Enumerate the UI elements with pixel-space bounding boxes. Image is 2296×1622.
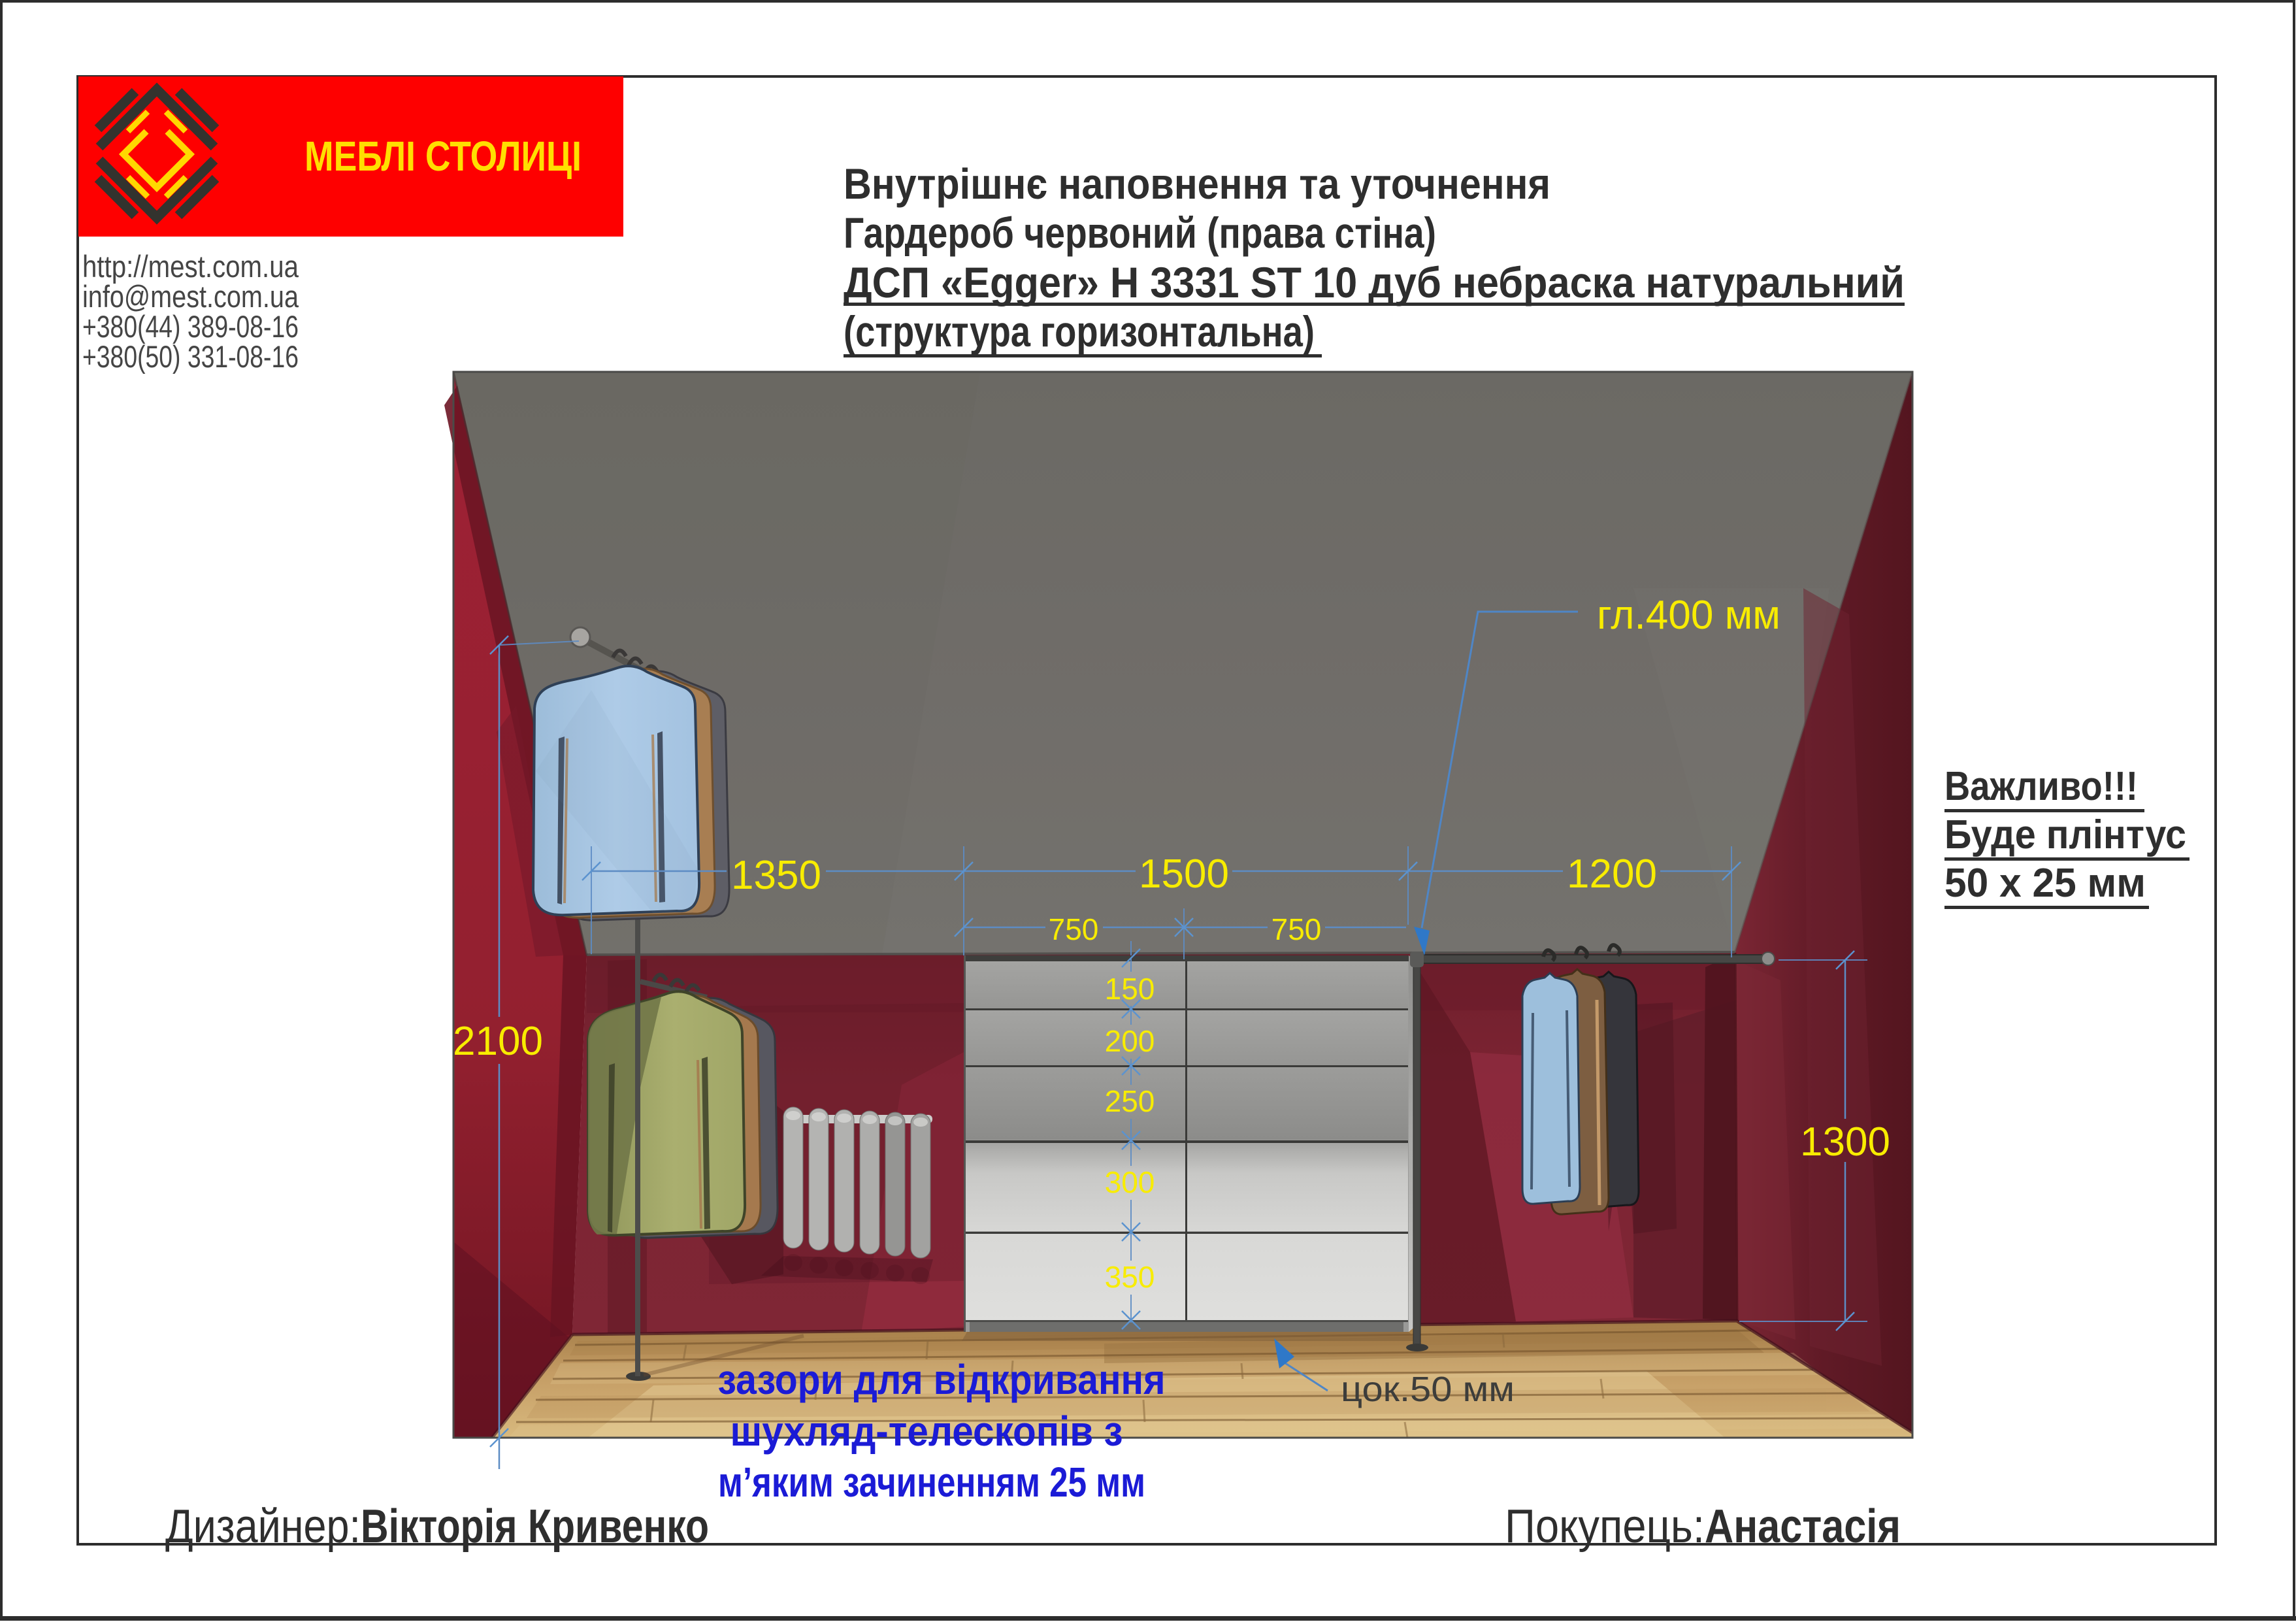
svg-text:(структура горизонтальна): (структура горизонтальна) [844,307,1315,356]
svg-text:Покупець:: Покупець: [1505,1500,1705,1553]
svg-text:200: 200 [1105,1024,1155,1058]
svg-text:1350: 1350 [731,853,821,898]
svg-text:Внутрішнє наповнення та уточне: Внутрішнє наповнення та уточнення [844,159,1550,208]
svg-text:м’яким зачиненням 25 мм: м’яким зачиненням 25 мм [718,1459,1145,1506]
svg-text:750: 750 [1049,912,1099,946]
svg-text:шухляд-телескопів з: шухляд-телескопів з [730,1408,1123,1455]
svg-text:Дизайнер:: Дизайнер: [165,1500,361,1553]
svg-text:Анастасія: Анастасія [1705,1500,1901,1553]
svg-text:Важливо!!!: Важливо!!! [1944,764,2138,809]
svg-text:МЕБЛІ СТОЛИЦІ: МЕБЛІ СТОЛИЦІ [304,133,582,180]
svg-text:2100: 2100 [453,1019,543,1064]
svg-text:1500: 1500 [1139,852,1229,897]
svg-text:цок.50 мм: цок.50 мм [1341,1370,1515,1409]
svg-text:1300: 1300 [1800,1119,1890,1165]
svg-text:250: 250 [1105,1084,1155,1118]
svg-text:150: 150 [1105,972,1155,1006]
svg-text:350: 350 [1105,1260,1155,1294]
svg-text:750: 750 [1271,912,1322,946]
svg-text:ДСП «Egger» Н 3331 ST 10 дуб н: ДСП «Egger» Н 3331 ST 10 дуб небраска на… [844,258,1905,306]
svg-text:+380(50) 331-08-16: +380(50) 331-08-16 [82,339,299,374]
svg-text:Буде плінтус: Буде плінтус [1944,812,2186,857]
svg-text:Гардероб червоний (права стіна: Гардероб червоний (права стіна) [844,208,1436,257]
svg-text:Вікторія Кривенко: Вікторія Кривенко [361,1500,709,1553]
svg-text:гл.400 мм: гл.400 мм [1597,593,1780,638]
svg-text:зазори для відкривання: зазори для відкривання [718,1356,1166,1403]
svg-text:300: 300 [1105,1165,1155,1199]
svg-text:1200: 1200 [1567,852,1657,897]
svg-text:50 х 25 мм: 50 х 25 мм [1944,861,2146,906]
